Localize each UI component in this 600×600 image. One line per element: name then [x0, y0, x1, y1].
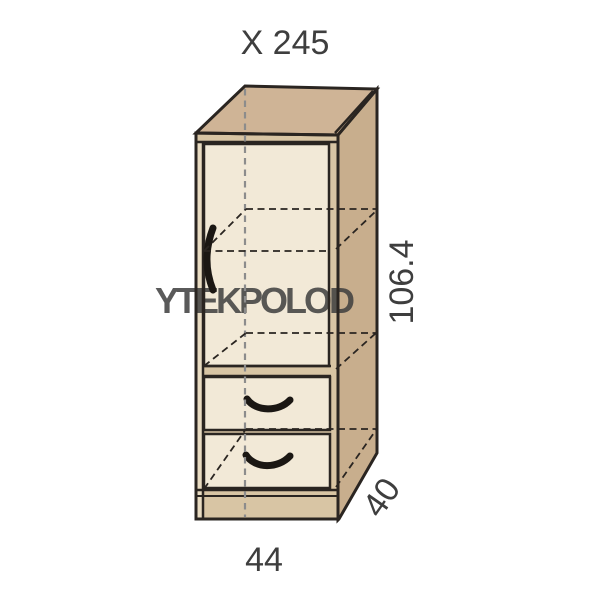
furniture-diagram-page: YTEKPOLOD [0, 0, 600, 600]
watermark: YTEKPOLOD [155, 280, 354, 321]
height-dimension-label: 106.4 [383, 239, 421, 324]
cabinet-diagram: YTEKPOLOD [0, 0, 600, 600]
drawer-2-panel [204, 434, 330, 488]
diagram-title: X 245 [241, 24, 330, 62]
width-dimension-label: 44 [245, 541, 283, 579]
drawer-1-panel [204, 377, 330, 430]
